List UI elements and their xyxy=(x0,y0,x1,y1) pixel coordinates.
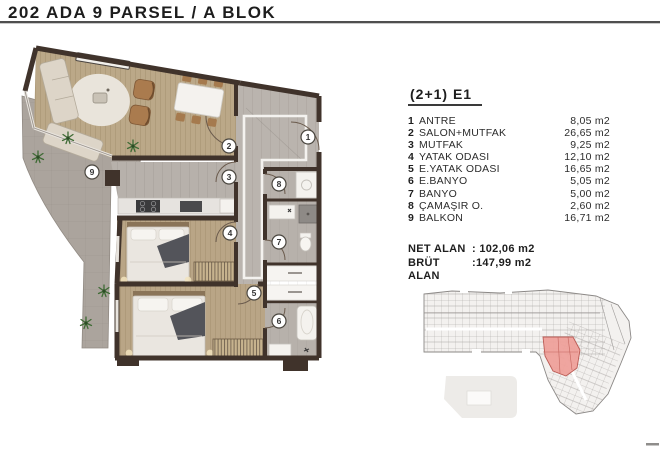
room-row: 4 YATAK ODASI 12,10 m2 xyxy=(408,151,610,163)
bed xyxy=(121,222,192,283)
room-area: 5,00 m2 xyxy=(570,188,610,200)
room-label-1: 1 xyxy=(301,130,315,144)
wardrobe xyxy=(213,339,263,357)
room-row: 5 E.YATAK ODASI 16,65 m2 xyxy=(408,163,610,175)
unit-type-heading: (2+1) E1 xyxy=(408,86,482,106)
room-number: 8 xyxy=(408,200,419,212)
room-name: YATAK ODASI xyxy=(419,151,564,163)
brochure-page: { "title": "202 ADA 9 PARSEL / A BLOK", … xyxy=(0,0,660,466)
room-area: 26,65 m2 xyxy=(564,127,610,139)
area-totals: NET ALAN : 102,06 m2 BRÜT ALAN :147,99 m… xyxy=(408,243,610,284)
room-label-3: 3 xyxy=(222,170,236,184)
fridge xyxy=(220,199,235,213)
svg-text:8: 8 xyxy=(277,179,282,189)
svg-text:1: 1 xyxy=(306,132,311,142)
room-number: 4 xyxy=(408,151,419,163)
total-value: : 102,06 m2 xyxy=(472,243,535,257)
total-row: BRÜT ALAN :147,99 m2 xyxy=(408,257,610,284)
room-name: BALKON xyxy=(419,212,564,224)
room-area: 2,60 m2 xyxy=(570,200,610,212)
wall-stub xyxy=(117,358,139,366)
room-name: MUTFAK xyxy=(419,139,570,151)
total-value: :147,99 m2 xyxy=(472,257,531,284)
stove-icon xyxy=(136,200,160,213)
room-row: 8 ÇAMAŞIR O. 2,60 m2 xyxy=(408,200,610,212)
kitchen-sink xyxy=(180,201,202,212)
room-row: 7 BANYO 5,00 m2 xyxy=(408,188,610,200)
room-number: 6 xyxy=(408,175,419,187)
room-row: 9 BALKON 16,71 m2 xyxy=(408,212,610,224)
room-label-4: 4 xyxy=(223,226,237,240)
room-label-6: 6 xyxy=(272,314,286,328)
room-area: 8,05 m2 xyxy=(570,115,610,127)
vanity-sink xyxy=(269,205,295,219)
room-area: 16,71 m2 xyxy=(564,212,610,224)
room-list: 1 ANTRE 8,05 m2 2 SALON+MUTFAK 26,65 m2 … xyxy=(408,115,610,224)
vanity-sink xyxy=(269,344,291,356)
wardrobe xyxy=(194,262,236,281)
room-name: E.BANYO xyxy=(419,175,570,187)
room-label-5: 5 xyxy=(247,286,261,300)
svg-text:4: 4 xyxy=(228,228,233,238)
bed xyxy=(126,291,214,358)
svg-text:7: 7 xyxy=(277,237,282,247)
room-label-8: 8 xyxy=(272,177,286,191)
toilet xyxy=(300,237,311,251)
key-plan xyxy=(415,285,660,466)
svg-text:2: 2 xyxy=(227,141,232,151)
total-row: NET ALAN : 102,06 m2 xyxy=(408,243,610,257)
key-plan-adjacent-building xyxy=(444,376,517,418)
kitchen-floor xyxy=(111,162,236,214)
svg-text:5: 5 xyxy=(252,288,257,298)
room-number: 5 xyxy=(408,163,419,175)
room-number: 1 xyxy=(408,115,419,127)
wall-stub xyxy=(283,358,308,371)
room-name: ÇAMAŞIR O. xyxy=(419,200,570,212)
room-label-9: 9 xyxy=(85,165,99,179)
svg-text:9: 9 xyxy=(90,167,95,177)
room-area: 16,65 m2 xyxy=(564,163,610,175)
room-number: 3 xyxy=(408,139,419,151)
room-row: 6 E.BANYO 5,05 m2 xyxy=(408,175,610,187)
room-number: 7 xyxy=(408,188,419,200)
unit-info-panel: (2+1) E1 1 ANTRE 8,05 m2 2 SALON+MUTFAK … xyxy=(408,86,610,224)
room-row: 2 SALON+MUTFAK 26,65 m2 xyxy=(408,127,610,139)
room-area: 5,05 m2 xyxy=(570,175,610,187)
room-name: BANYO xyxy=(419,188,570,200)
total-label: BRÜT ALAN xyxy=(408,257,472,284)
wall-stub xyxy=(105,170,120,186)
floor-plan: 1 2 3 4 5 6 7 8 xyxy=(0,0,400,466)
room-area: 12,10 m2 xyxy=(564,151,610,163)
room-area: 9,25 m2 xyxy=(570,139,610,151)
key-plan-building xyxy=(420,288,631,429)
room-number: 2 xyxy=(408,127,419,139)
room-label-2: 2 xyxy=(222,139,236,153)
room-label-7: 7 xyxy=(272,235,286,249)
room-number: 9 xyxy=(408,212,419,224)
total-label: NET ALAN xyxy=(408,243,472,257)
svg-text:3: 3 xyxy=(227,172,232,182)
room-row: 3 MUTFAK 9,25 m2 xyxy=(408,139,610,151)
washer xyxy=(296,172,317,198)
room-name: SALON+MUTFAK xyxy=(419,127,564,139)
room-row: 1 ANTRE 8,05 m2 xyxy=(408,115,610,127)
svg-text:6: 6 xyxy=(277,316,282,326)
room-name: E.YATAK ODASI xyxy=(419,163,564,175)
bathtub xyxy=(297,306,317,340)
room-name: ANTRE xyxy=(419,115,570,127)
scale-dash xyxy=(646,443,659,446)
kitchen-counter xyxy=(118,198,236,214)
